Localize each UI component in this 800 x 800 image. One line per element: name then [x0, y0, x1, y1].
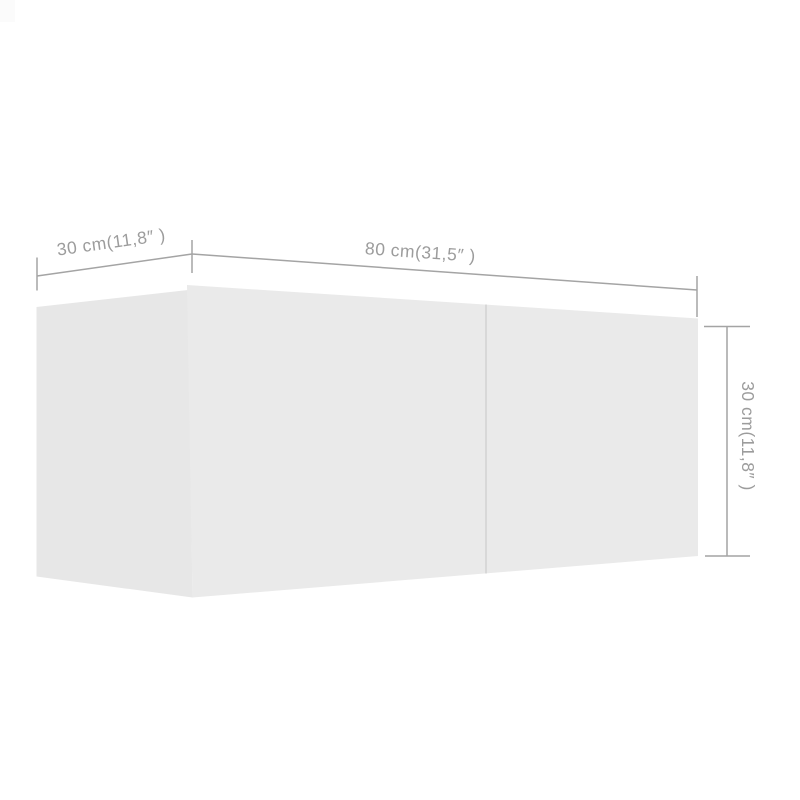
width-dimension-label: 80 cm(31,5″ ): [364, 238, 476, 266]
product-dimension-diagram: 30 cm(11,8″ ) 80 cm(31,5″ ) 30 cm(11,8″ …: [0, 0, 800, 800]
cabinet-front-face: [187, 285, 698, 598]
cabinet: [37, 285, 699, 598]
corner-artifact: [0, 0, 15, 22]
cabinet-side-face: [37, 290, 193, 598]
height-dimension-label: 30 cm(11,8″ ): [738, 381, 758, 491]
depth-dimension-label: 30 cm(11,8″ ): [55, 225, 166, 260]
depth-dimension-line: [37, 254, 192, 291]
